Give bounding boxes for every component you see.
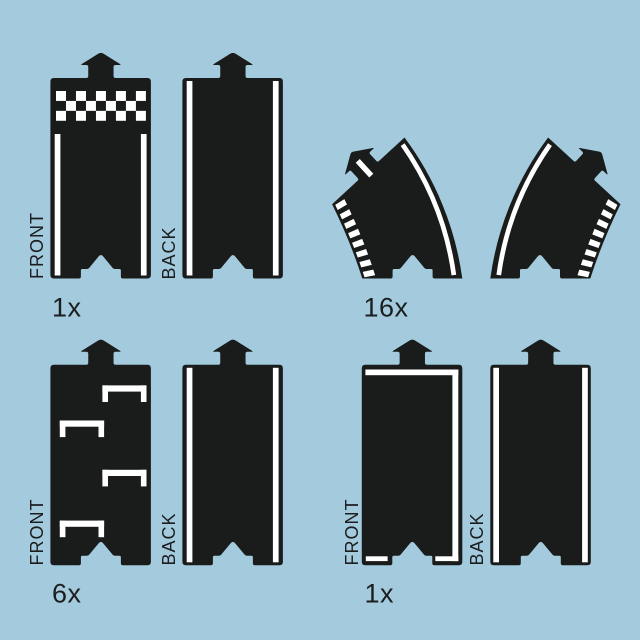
svg-text:BACK: BACK [467,512,487,565]
svg-text:FRONT: FRONT [342,499,362,566]
svg-text:1x: 1x [52,293,82,323]
svg-text:BACK: BACK [159,226,179,279]
svg-text:16x: 16x [364,293,409,323]
svg-text:6x: 6x [52,579,82,609]
svg-text:FRONT: FRONT [27,212,47,279]
svg-text:BACK: BACK [159,512,179,565]
svg-text:FRONT: FRONT [27,499,47,566]
svg-text:1x: 1x [365,579,395,609]
